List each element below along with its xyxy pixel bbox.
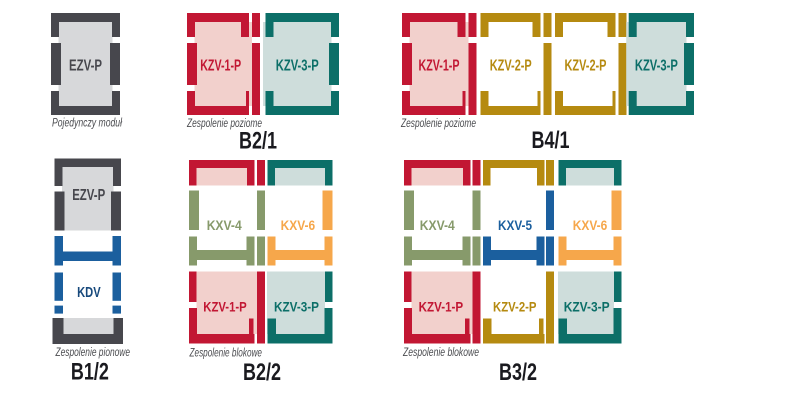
svg-text:KXV-6: KXV-6: [573, 217, 608, 233]
svg-text:KXV-4: KXV-4: [420, 217, 455, 233]
svg-text:B2/1: B2/1: [239, 127, 277, 154]
svg-text:KZV-3-P: KZV-3-P: [564, 299, 610, 315]
svg-text:B4/1: B4/1: [532, 127, 570, 154]
svg-text:KZV-2-P: KZV-2-P: [490, 57, 532, 74]
svg-text:KZV-3-P: KZV-3-P: [274, 299, 319, 315]
svg-text:KXV-6: KXV-6: [281, 217, 316, 233]
svg-text:KZV-1-P: KZV-1-P: [200, 57, 241, 74]
svg-text:B1/2: B1/2: [71, 358, 109, 385]
svg-text:KZV-2-P: KZV-2-P: [493, 299, 537, 315]
svg-text:KXV-4: KXV-4: [207, 217, 242, 233]
svg-text:B2/2: B2/2: [243, 359, 281, 386]
svg-text:B3/2: B3/2: [499, 359, 537, 386]
svg-text:Pojedynczy moduł: Pojedynczy moduł: [52, 118, 122, 130]
svg-text:Zespolenie blokowe: Zespolenie blokowe: [402, 347, 479, 359]
svg-text:KXV-5: KXV-5: [498, 217, 532, 233]
svg-text:KZV-1-P: KZV-1-P: [419, 57, 460, 74]
svg-text:EZV-P: EZV-P: [72, 187, 105, 204]
svg-text:KZV-1-P: KZV-1-P: [419, 299, 464, 315]
svg-text:KZV-3-P: KZV-3-P: [276, 57, 319, 74]
svg-text:KZV-1-P: KZV-1-P: [203, 299, 247, 315]
svg-text:Zespolenie poziome: Zespolenie poziome: [400, 118, 476, 130]
svg-text:EZV-P: EZV-P: [69, 57, 102, 74]
svg-text:KZV-2-P: KZV-2-P: [565, 57, 607, 74]
svg-text:Zespolenie blokowe: Zespolenie blokowe: [189, 348, 262, 360]
svg-text:KZV-3-P: KZV-3-P: [635, 57, 678, 74]
svg-text:KDV: KDV: [77, 285, 101, 301]
svg-text:Zespolenie pionowe: Zespolenie pionowe: [55, 347, 130, 359]
